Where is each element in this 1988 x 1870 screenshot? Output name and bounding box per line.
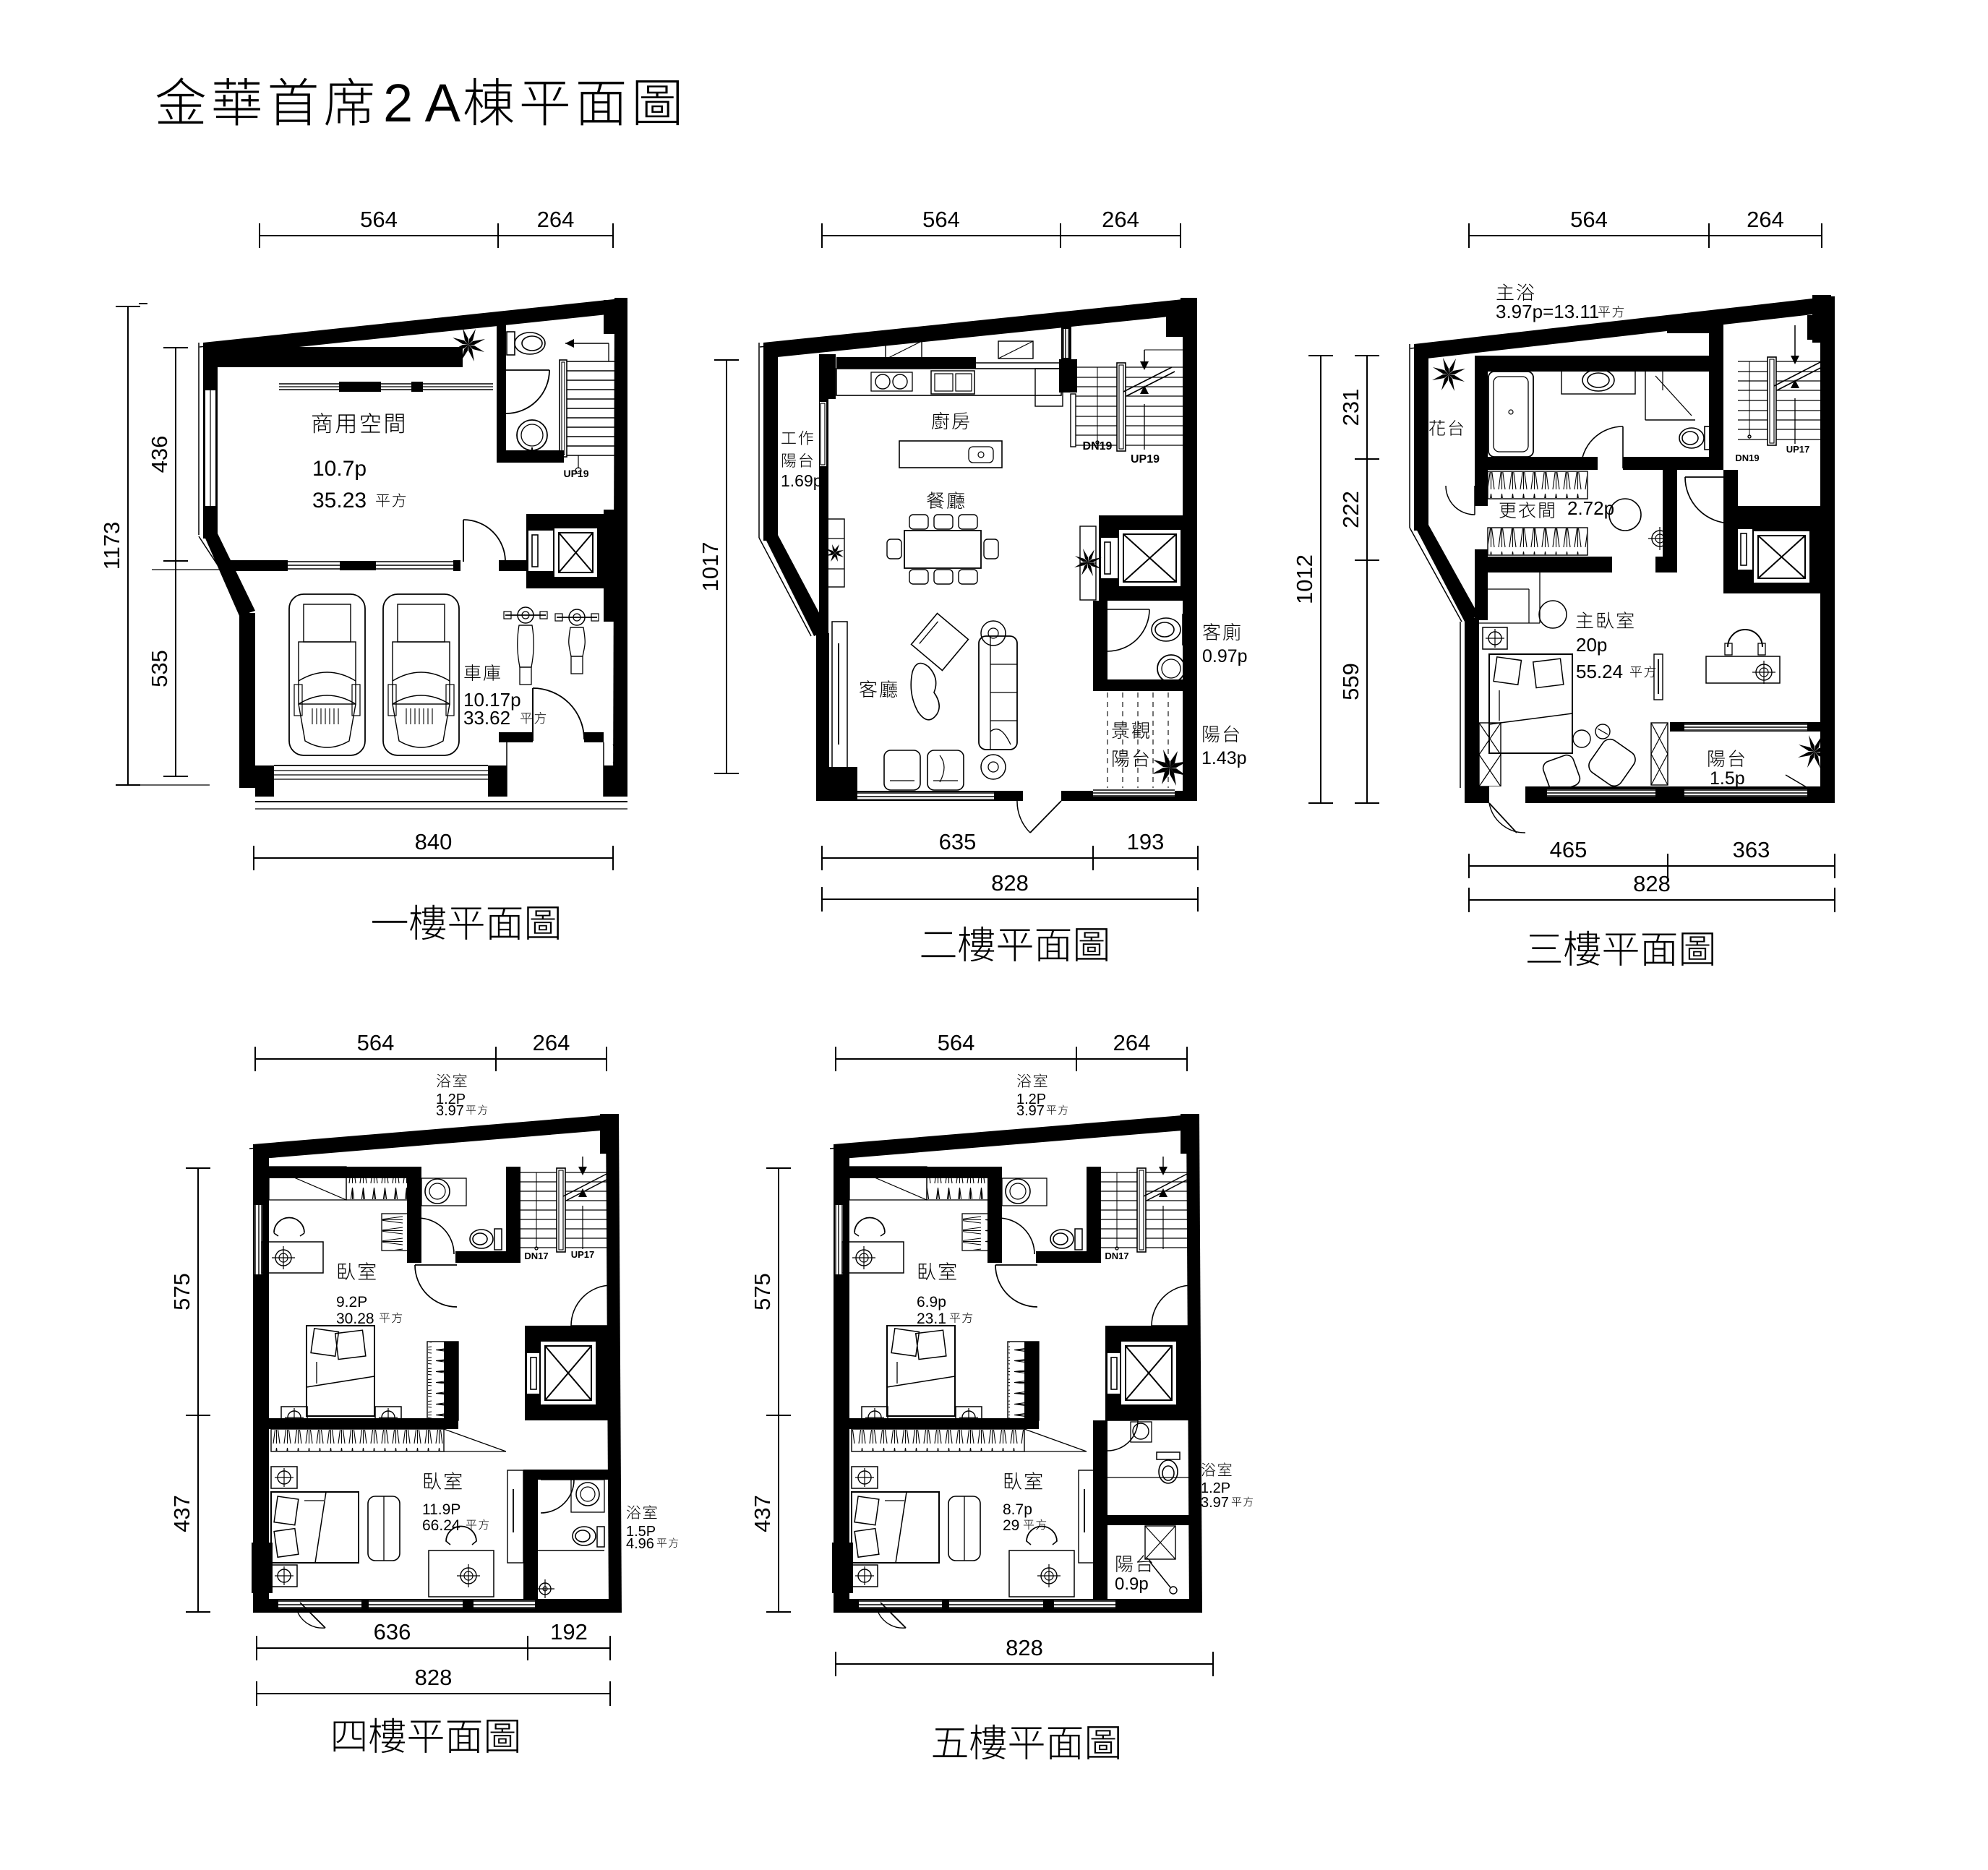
svg-text:222: 222 (1338, 491, 1363, 528)
svg-text:564: 564 (360, 207, 398, 232)
svg-text:20p: 20p (1576, 634, 1607, 656)
svg-text:0.97p: 0.97p (1202, 646, 1248, 666)
svg-text:DN17: DN17 (1105, 1251, 1128, 1261)
svg-text:828: 828 (1006, 1635, 1043, 1660)
svg-text:4.96: 4.96 (626, 1536, 654, 1552)
svg-text:9.2P: 9.2P (336, 1294, 367, 1311)
svg-text:UP17: UP17 (1786, 444, 1810, 455)
svg-text:231: 231 (1338, 389, 1363, 426)
svg-text:3.97: 3.97 (1201, 1495, 1229, 1511)
svg-text:2 A: 2 A (383, 73, 461, 133)
svg-text:535: 535 (147, 650, 172, 687)
svg-text:UP19: UP19 (563, 468, 588, 479)
svg-text:DN19: DN19 (1735, 453, 1759, 463)
svg-text:559: 559 (1338, 663, 1363, 700)
svg-text:10.7p: 10.7p (312, 457, 367, 481)
svg-text:1.69p: 1.69p (781, 471, 823, 490)
svg-text:3.97: 3.97 (436, 1103, 464, 1119)
svg-text:DN17: DN17 (524, 1251, 548, 1261)
svg-text:30.28: 30.28 (336, 1311, 374, 1327)
svg-text:635: 635 (939, 829, 977, 854)
svg-text:564: 564 (1570, 207, 1608, 232)
svg-text:3.97: 3.97 (1016, 1103, 1045, 1119)
svg-text:1.2P: 1.2P (1201, 1480, 1230, 1496)
svg-text:264: 264 (1747, 207, 1784, 232)
svg-text:264: 264 (537, 207, 575, 232)
svg-text:575: 575 (750, 1273, 775, 1311)
svg-text:636: 636 (374, 1619, 411, 1644)
svg-text:1.43p: 1.43p (1201, 748, 1247, 768)
svg-text:828: 828 (415, 1665, 453, 1690)
svg-text:UP17: UP17 (571, 1249, 595, 1260)
svg-text:55.24: 55.24 (1576, 661, 1623, 682)
svg-text:1173: 1173 (99, 522, 124, 570)
svg-text:6.9p: 6.9p (917, 1294, 946, 1311)
svg-text:564: 564 (938, 1030, 975, 1055)
svg-text:8.7p: 8.7p (1003, 1501, 1032, 1518)
svg-text:437: 437 (169, 1495, 194, 1532)
svg-text:DN19: DN19 (1083, 440, 1113, 453)
svg-text:11.9P: 11.9P (422, 1501, 460, 1518)
svg-text:363: 363 (1733, 837, 1770, 862)
svg-text:264: 264 (1113, 1030, 1151, 1055)
svg-text:264: 264 (1102, 207, 1139, 232)
svg-text:564: 564 (922, 207, 960, 232)
svg-text:1017: 1017 (698, 542, 723, 592)
svg-text:23.1: 23.1 (917, 1311, 946, 1327)
svg-text:33.62: 33.62 (463, 707, 510, 729)
svg-text:575: 575 (169, 1273, 194, 1311)
svg-text:828: 828 (991, 870, 1029, 896)
svg-text:66.24: 66.24 (422, 1517, 460, 1534)
svg-text:436: 436 (147, 436, 172, 473)
svg-text:828: 828 (1633, 871, 1671, 896)
svg-text:UP19: UP19 (1131, 453, 1160, 466)
svg-text:0.9p: 0.9p (1115, 1574, 1149, 1594)
svg-text:1.5p: 1.5p (1710, 768, 1745, 789)
svg-text:3.97p=13.11: 3.97p=13.11 (1496, 301, 1599, 322)
svg-text:192: 192 (550, 1619, 588, 1644)
svg-text:193: 193 (1127, 829, 1165, 854)
svg-text:437: 437 (750, 1495, 775, 1532)
svg-text:35.23: 35.23 (312, 489, 367, 512)
svg-text:564: 564 (357, 1030, 395, 1055)
svg-text:264: 264 (533, 1030, 570, 1055)
svg-text:2.72p: 2.72p (1567, 497, 1614, 519)
svg-text:29: 29 (1003, 1517, 1019, 1534)
svg-text:840: 840 (415, 829, 453, 854)
svg-text:465: 465 (1550, 837, 1588, 862)
svg-text:1012: 1012 (1292, 554, 1317, 604)
